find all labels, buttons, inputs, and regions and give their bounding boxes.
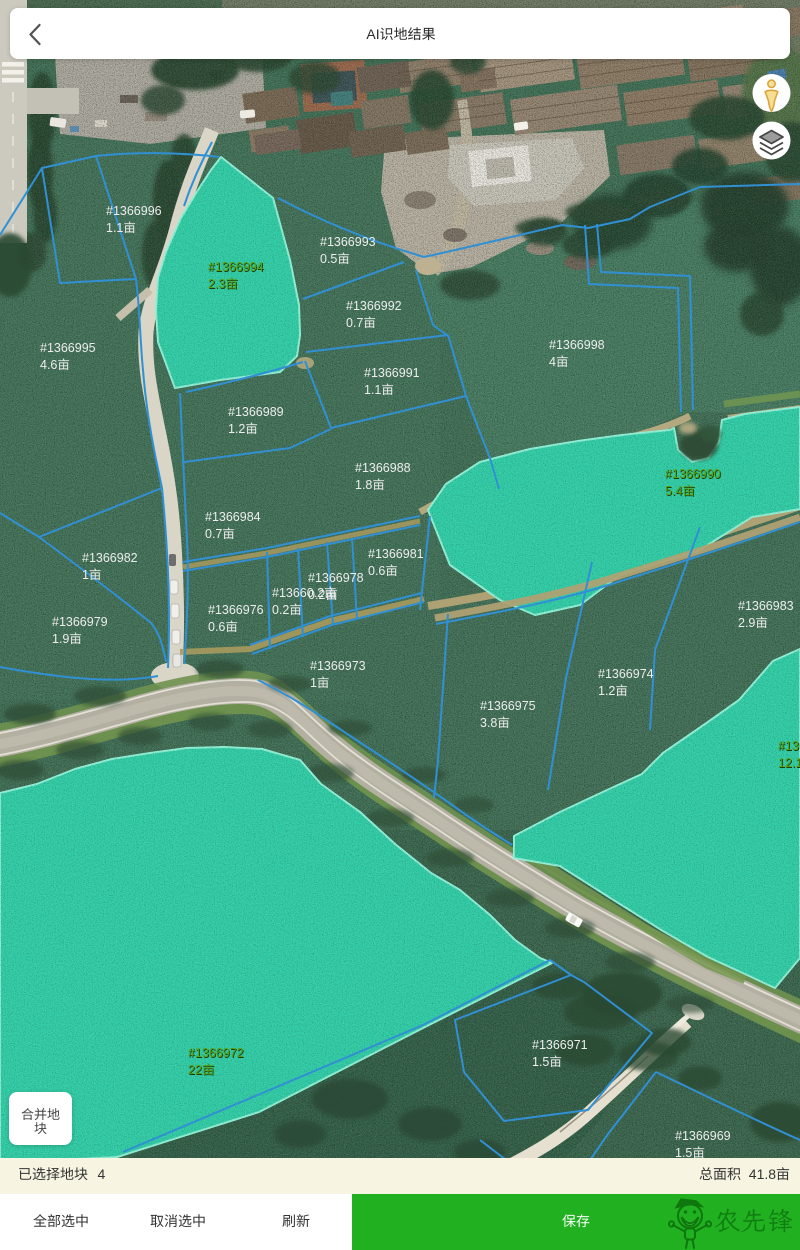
svg-text:#1366995: #1366995 bbox=[40, 341, 96, 355]
svg-text:#1366978: #1366978 bbox=[308, 571, 364, 585]
svg-text:#1366969: #1366969 bbox=[675, 1129, 731, 1143]
svg-text:41.8: 41.8 bbox=[749, 1166, 776, 1182]
svg-text:4.6: 4.6 bbox=[40, 358, 57, 372]
svg-text:#1366972: #1366972 bbox=[188, 1046, 244, 1060]
svg-text:#1366984: #1366984 bbox=[205, 510, 261, 524]
svg-text:22: 22 bbox=[188, 1063, 202, 1077]
svg-text:1.2: 1.2 bbox=[228, 422, 245, 436]
svg-text:AI: AI bbox=[366, 26, 379, 42]
svg-text:#1366988: #1366988 bbox=[355, 461, 411, 475]
svg-text:#1366994: #1366994 bbox=[208, 260, 264, 274]
svg-text:0.6: 0.6 bbox=[368, 564, 385, 578]
svg-text:1: 1 bbox=[310, 676, 317, 690]
svg-text:4: 4 bbox=[549, 355, 556, 369]
svg-text:0.5: 0.5 bbox=[320, 252, 337, 266]
svg-text:1.1: 1.1 bbox=[364, 383, 381, 397]
svg-text:0.2: 0.2 bbox=[272, 603, 289, 617]
svg-text:#1366998: #1366998 bbox=[549, 338, 605, 352]
svg-text:#1366979: #1366979 bbox=[52, 615, 108, 629]
svg-text:1.2: 1.2 bbox=[598, 684, 615, 698]
svg-text:1.5: 1.5 bbox=[532, 1055, 549, 1069]
svg-text:2.9: 2.9 bbox=[738, 616, 755, 630]
svg-text:#1366974: #1366974 bbox=[598, 667, 654, 681]
svg-text:#1366975: #1366975 bbox=[480, 699, 536, 713]
svg-text:#1366990: #1366990 bbox=[665, 467, 721, 481]
svg-text:0.7: 0.7 bbox=[205, 527, 222, 541]
svg-text:#1366973: #1366973 bbox=[310, 659, 366, 673]
svg-text:5.4: 5.4 bbox=[665, 484, 682, 498]
svg-text:2.3: 2.3 bbox=[208, 277, 225, 291]
svg-text:#1366981: #1366981 bbox=[368, 547, 424, 561]
svg-text:#1366982: #1366982 bbox=[82, 551, 138, 565]
svg-text:1.1: 1.1 bbox=[106, 221, 123, 235]
svg-text:1.8: 1.8 bbox=[355, 478, 372, 492]
svg-text:#13660.2: #13660.2 bbox=[272, 586, 324, 600]
svg-text:1: 1 bbox=[82, 568, 89, 582]
svg-text:12.1: 12.1 bbox=[778, 756, 800, 770]
svg-text:0.7: 0.7 bbox=[346, 316, 363, 330]
svg-text:#1366992: #1366992 bbox=[346, 299, 402, 313]
svg-text:#1366976: #1366976 bbox=[208, 603, 264, 617]
svg-text:0.6: 0.6 bbox=[208, 620, 225, 634]
svg-text:4: 4 bbox=[98, 1166, 106, 1182]
svg-text:#1366983: #1366983 bbox=[738, 599, 794, 613]
svg-text:#1366991: #1366991 bbox=[364, 366, 420, 380]
svg-text:#1366993: #1366993 bbox=[320, 235, 376, 249]
svg-text:3.8: 3.8 bbox=[480, 716, 497, 730]
svg-text:1.9: 1.9 bbox=[52, 632, 69, 646]
svg-text:#1366996: #1366996 bbox=[106, 204, 162, 218]
svg-text:#1366989: #1366989 bbox=[228, 405, 284, 419]
svg-text:#1366971: #1366971 bbox=[532, 1038, 588, 1052]
svg-text:#1366: #1366 bbox=[778, 739, 800, 753]
